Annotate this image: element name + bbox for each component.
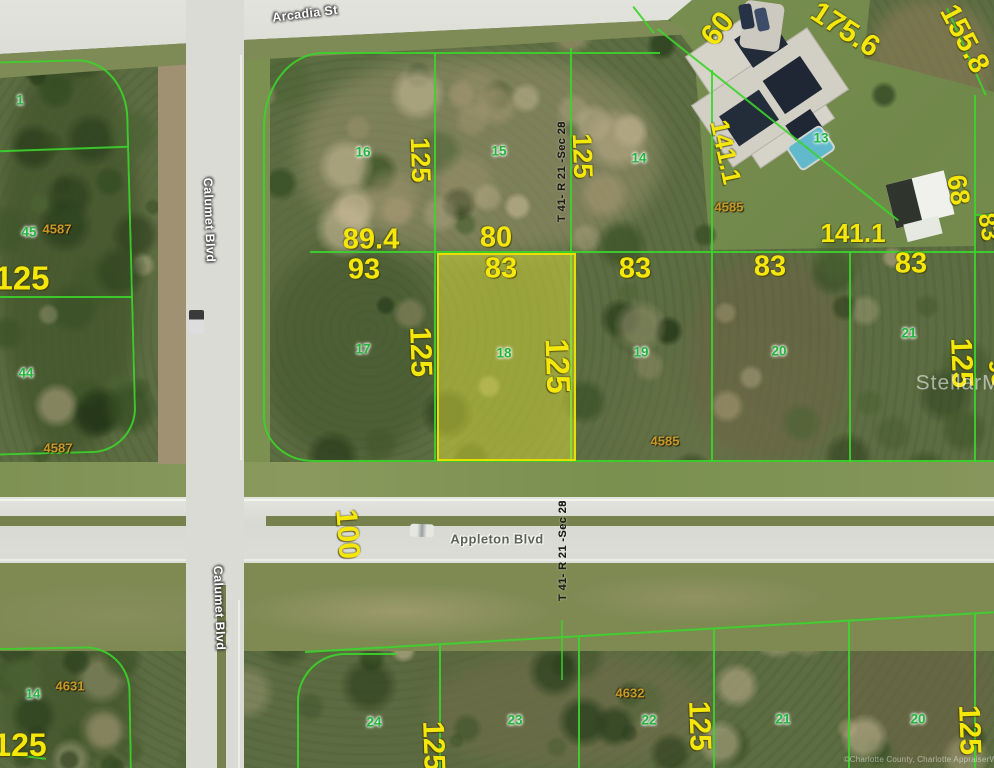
lot-number: 14 xyxy=(25,687,40,701)
block-number: 4587 xyxy=(43,223,72,236)
dimension-label: 141.1 xyxy=(707,117,746,186)
dimension-label: 83 xyxy=(619,255,651,284)
dimension-label: 60 xyxy=(696,7,740,52)
dimension-label: 125 xyxy=(417,720,449,768)
section-label-line: T 41- R 21 -Sec 28 xyxy=(557,121,568,222)
dimension-label: 125 xyxy=(683,700,715,751)
dimension-label: 141.1 xyxy=(820,220,885,246)
lot-number: 16 xyxy=(355,145,370,159)
lot-number: 24 xyxy=(366,715,381,729)
aerial-parcel-map: Arcadia StCalumet BlvdCalumet BlvdApplet… xyxy=(0,0,994,768)
dimension-label: 89.4 xyxy=(343,226,399,255)
dimension-label: 83 xyxy=(973,211,994,243)
lot-number: 18 xyxy=(496,346,511,360)
lot-number: 17 xyxy=(355,342,370,356)
dimension-label: 83 xyxy=(754,253,786,282)
lot-number: 21 xyxy=(775,712,790,726)
block-number: 4585 xyxy=(715,201,744,214)
dimension-label: 68 xyxy=(942,173,974,207)
dimension-label: 125 xyxy=(0,729,47,761)
lot-number: 15 xyxy=(491,144,506,158)
dimension-label: 83 xyxy=(485,255,517,284)
block-number: 4631 xyxy=(56,680,85,693)
lot-number: 44 xyxy=(18,366,33,380)
dimension-label: 175.6 xyxy=(805,0,884,63)
dimension-label: 100 xyxy=(330,508,363,560)
lot-number: 23 xyxy=(507,713,522,727)
copyright-notice: ©Charlotte County, Charlotte AppraiserWe… xyxy=(844,756,994,764)
dimension-label: 80 xyxy=(480,224,512,253)
lot-number: 14 xyxy=(631,151,646,165)
lot-number: 22 xyxy=(641,713,656,727)
lot-number: 19 xyxy=(633,345,648,359)
lot-number: 1 xyxy=(16,93,24,107)
dimension-label: 125 xyxy=(0,262,50,295)
watermark: StellarMLS xyxy=(916,373,994,394)
dimension-label: 125 xyxy=(404,326,436,377)
section-label-line: T 41- R 21 -Sec 28 xyxy=(558,500,569,601)
block-number: 4632 xyxy=(616,687,645,700)
dimension-label: 125 xyxy=(541,338,576,394)
dimension-label: 125 xyxy=(568,133,597,179)
dimension-label: 125 xyxy=(953,704,985,755)
lot-number: 21 xyxy=(901,326,916,340)
lot-number: 45 xyxy=(21,225,36,239)
block-number: 4585 xyxy=(651,435,680,448)
dimension-label: 155.8 xyxy=(934,0,994,78)
dimension-label: 125 xyxy=(406,137,435,183)
block-number: 4587 xyxy=(44,442,73,455)
labels-layer: Arcadia StCalumet BlvdCalumet BlvdApplet… xyxy=(0,0,994,768)
lot-number: 20 xyxy=(771,344,786,358)
lot-number: 20 xyxy=(910,712,925,726)
street-label: Arcadia St xyxy=(272,4,339,24)
street-label: Calumet Blvd xyxy=(201,177,216,262)
dimension-label: 83 xyxy=(895,250,927,279)
lot-number: 13 xyxy=(813,131,828,145)
street-label: Calumet Blvd xyxy=(211,565,226,650)
street-label: Appleton Blvd xyxy=(450,533,543,546)
dimension-label: 93 xyxy=(348,256,380,285)
